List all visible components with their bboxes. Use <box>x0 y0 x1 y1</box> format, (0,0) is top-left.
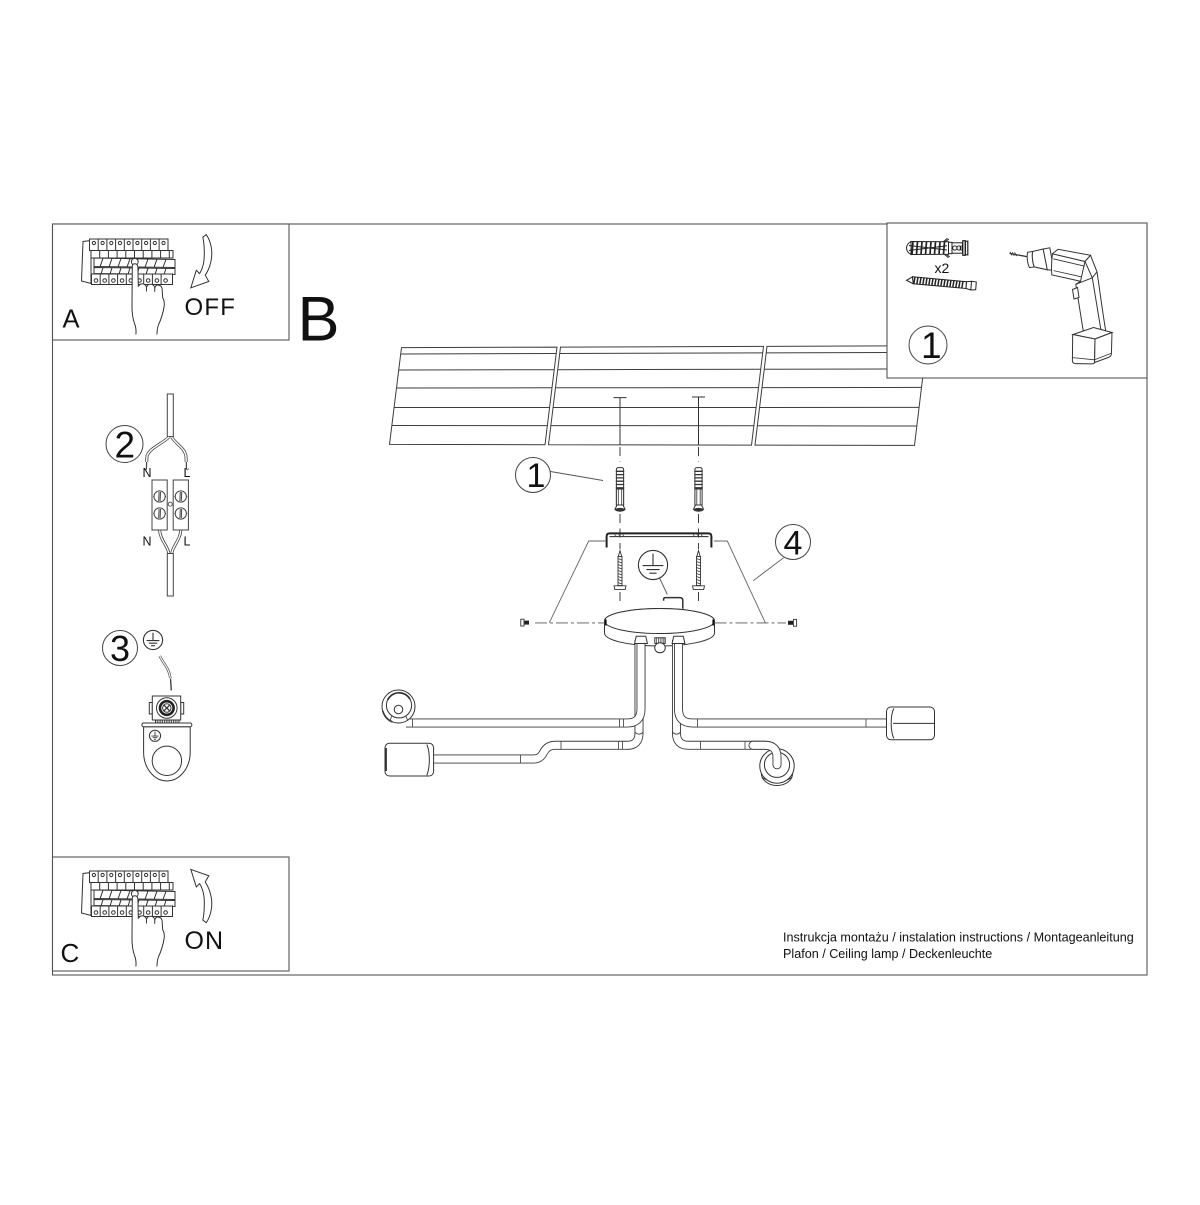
svg-text:N: N <box>143 535 152 549</box>
svg-text:1: 1 <box>527 457 546 495</box>
svg-text:Instrukcja montażu / instalati: Instrukcja montażu / instalation instruc… <box>783 931 1134 945</box>
svg-text:B: B <box>298 285 340 355</box>
svg-text:A: A <box>63 306 80 334</box>
svg-text:N: N <box>143 466 152 480</box>
svg-text:3: 3 <box>110 628 130 669</box>
svg-text:C: C <box>61 938 80 968</box>
svg-text:L: L <box>184 535 191 549</box>
svg-text:L: L <box>184 466 191 480</box>
svg-text:2: 2 <box>115 425 136 466</box>
svg-text:x2: x2 <box>935 260 950 276</box>
svg-text:1: 1 <box>921 325 942 366</box>
svg-text:OFF: OFF <box>185 294 237 321</box>
svg-text:Plafon / Ceiling lamp / Decken: Plafon / Ceiling lamp / Deckenleuchte <box>783 947 992 961</box>
svg-text:4: 4 <box>784 525 803 563</box>
svg-text:ON: ON <box>185 927 225 955</box>
